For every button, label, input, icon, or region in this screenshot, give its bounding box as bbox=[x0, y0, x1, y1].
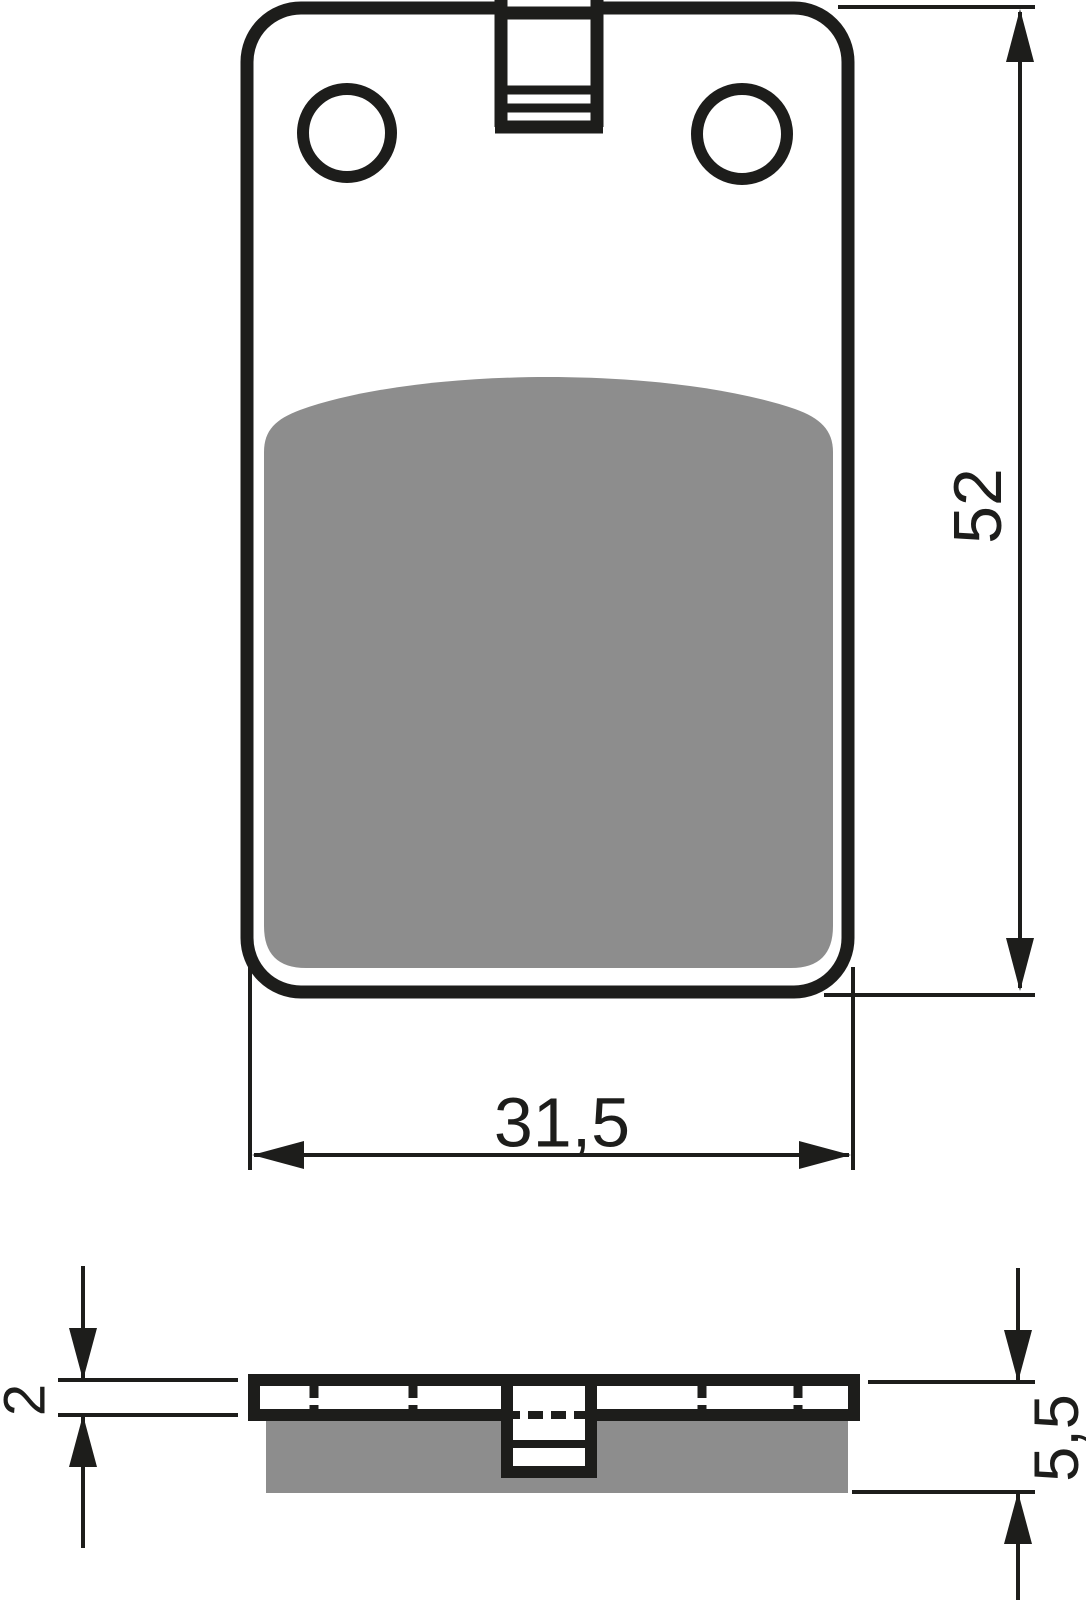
arrowhead-up bbox=[69, 1415, 97, 1467]
dim-width-label: 31,5 bbox=[494, 1084, 630, 1162]
arrowhead-down bbox=[1004, 1330, 1032, 1382]
front-view bbox=[247, 0, 848, 992]
friction-pad-front bbox=[264, 377, 833, 968]
mounting-tab-front bbox=[495, 0, 603, 127]
dim-height: 52 bbox=[824, 7, 1035, 995]
mounting-tab-side bbox=[501, 1386, 597, 1478]
drawing-canvas: 52 31,5 2 bbox=[0, 0, 1089, 1600]
side-view bbox=[254, 1380, 854, 1493]
arrowhead-up bbox=[1004, 1492, 1032, 1544]
dim-total-thickness: 5,5 bbox=[852, 1268, 1089, 1600]
arrowhead-down bbox=[69, 1328, 97, 1380]
dim-height-label: 52 bbox=[940, 468, 1016, 544]
dim-total-thickness-label: 5,5 bbox=[1022, 1394, 1089, 1482]
dim-backing-thickness-label: 2 bbox=[0, 1384, 57, 1416]
mounting-hole-right bbox=[697, 89, 787, 179]
arrowhead-down bbox=[1006, 938, 1034, 991]
arrowhead-left bbox=[252, 1141, 304, 1169]
arrowhead-right bbox=[799, 1141, 851, 1169]
drawing-page: 52 31,5 2 bbox=[0, 0, 1089, 1600]
tab-body bbox=[501, 1386, 597, 1478]
mounting-hole-left bbox=[303, 89, 391, 177]
arrowhead-up bbox=[1006, 9, 1034, 62]
dim-backing-thickness: 2 bbox=[0, 1266, 238, 1548]
